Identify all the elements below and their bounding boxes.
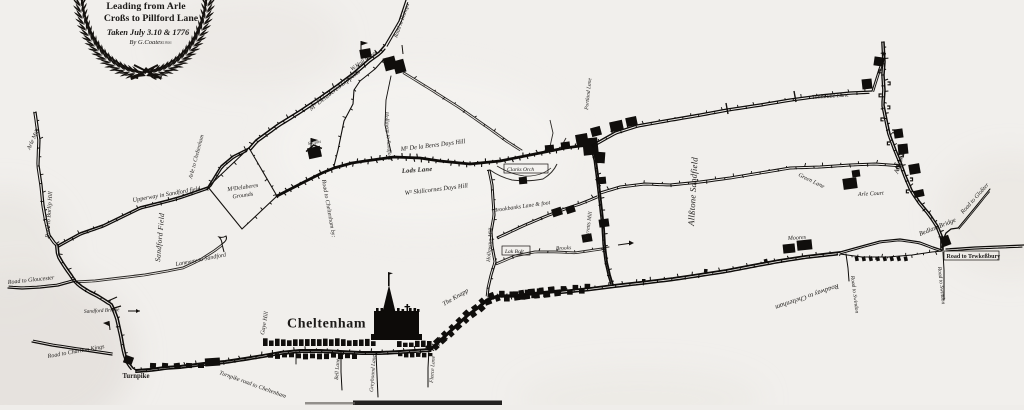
- svg-text:Turnpike: Turnpike: [123, 373, 150, 380]
- svg-text:Cheltenham: Cheltenham: [287, 317, 366, 332]
- svg-text:By G.Coates: By G.Coates: [129, 39, 163, 46]
- svg-text:Leading from Arle: Leading from Arle: [106, 1, 186, 12]
- svg-text:Brooks: Brooks: [556, 245, 572, 252]
- svg-text:Road to Tewkeßbury: Road to Tewkeßbury: [947, 254, 1001, 260]
- svg-text:Taken July 3.10 & 1776: Taken July 3.10 & 1776: [107, 28, 190, 37]
- svg-text:1806: 1806: [163, 40, 173, 45]
- svg-text:Clarks Orch: Clarks Orch: [507, 167, 534, 173]
- svg-text:Croßs to Pillford Lane: Croßs to Pillford Lane: [104, 13, 199, 24]
